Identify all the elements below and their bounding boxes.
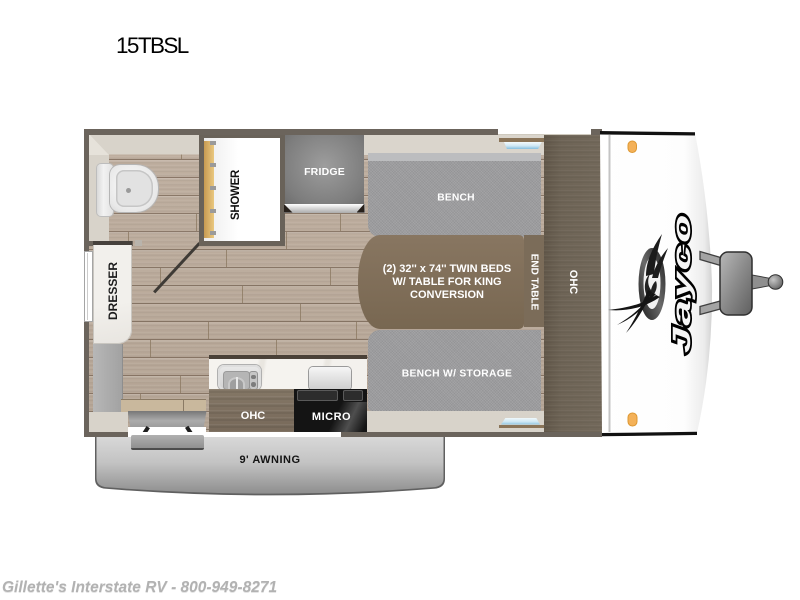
svg-text:Jayco: Jayco [668,213,696,353]
svg-text:9' AWNING: 9' AWNING [239,454,300,466]
